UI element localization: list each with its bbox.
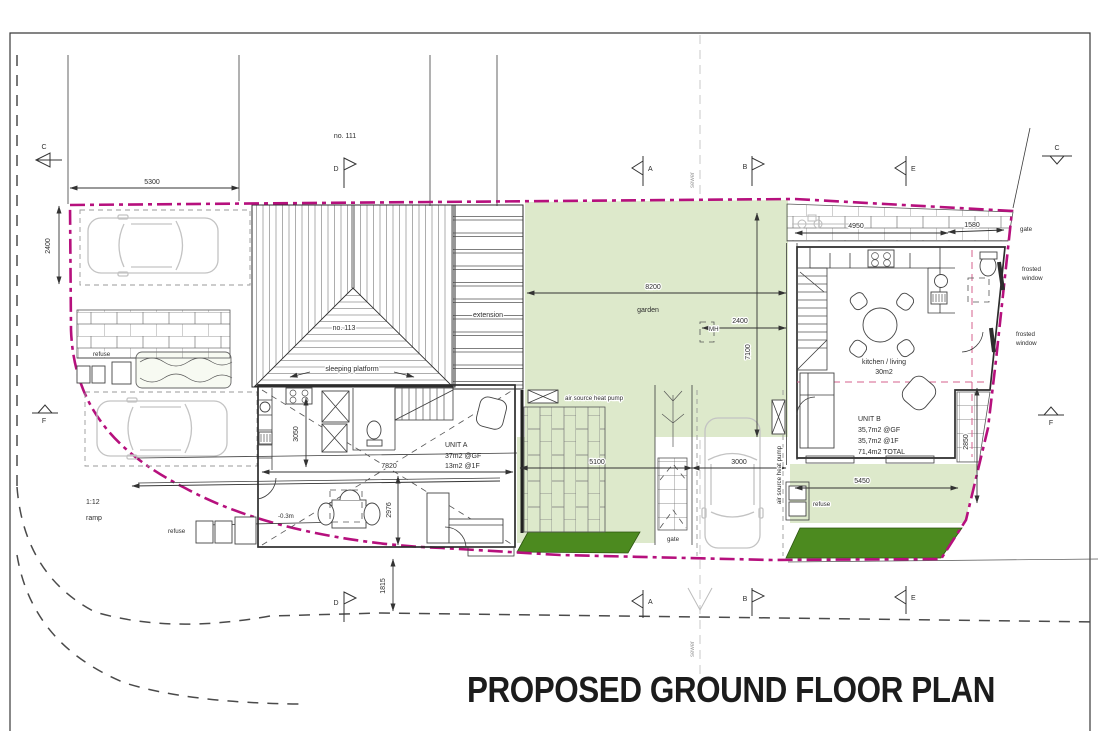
label-manhole: MH bbox=[709, 326, 719, 333]
street-kerb-outer-dashed bbox=[17, 555, 300, 704]
parking-bay-1 bbox=[80, 210, 250, 285]
drawing-title: PROPOSED GROUND FLOOR PLAN bbox=[467, 669, 995, 710]
marker-c-top-right: C bbox=[1042, 145, 1072, 164]
label-heat-pump-a: air source heat pump bbox=[565, 395, 624, 402]
dim-4950: 4950 bbox=[848, 223, 864, 230]
unit-b-name: UNIT B bbox=[858, 416, 881, 423]
label-gate-middle: gate bbox=[667, 536, 680, 543]
label-extension: extension bbox=[473, 312, 503, 319]
label-refuse-unit-b: refuse bbox=[813, 501, 831, 508]
label-refuse-unit-a: refuse bbox=[168, 528, 186, 535]
parking-bay-2 bbox=[85, 392, 257, 466]
sink-unit-b bbox=[935, 275, 948, 288]
marker-d-top: D bbox=[333, 158, 356, 188]
unit-b-total: 71,4m2 TOTAL bbox=[858, 449, 905, 456]
marker-f-right: F bbox=[1038, 407, 1064, 427]
patio-paving bbox=[524, 407, 605, 532]
unit-a bbox=[258, 385, 515, 556]
toilet-unit-a bbox=[367, 421, 381, 439]
lane-edge-line bbox=[1013, 128, 1030, 208]
sofa-unit-b bbox=[800, 373, 834, 448]
label-no-113: no. 113 bbox=[333, 325, 356, 332]
dining-unit-b bbox=[848, 291, 916, 359]
marker-letter: D bbox=[333, 166, 338, 173]
label-floor-level: -0.3m bbox=[278, 513, 294, 520]
frosted-window-2 bbox=[991, 328, 994, 352]
marker-d-bottom: D bbox=[333, 592, 356, 622]
unit-b-gf: 35,7m2 @GF bbox=[858, 427, 900, 434]
unit-a-name: UNIT A bbox=[445, 442, 468, 449]
label-sleeping-platform: sleeping platform bbox=[325, 366, 378, 373]
marker-letter: E bbox=[911, 595, 916, 602]
marker-b-top: B bbox=[743, 156, 764, 186]
dim-1580: 1580 bbox=[964, 222, 980, 229]
armchair-unit-a bbox=[475, 395, 508, 431]
unit-a-1f: 13m2 @1F bbox=[445, 463, 480, 470]
dim-2400-garden: 2400 bbox=[732, 318, 748, 325]
marker-a-top: A bbox=[632, 156, 653, 186]
dim-8200: 8200 bbox=[645, 284, 661, 291]
dim-7820: 7820 bbox=[381, 463, 397, 470]
label-ramp-gradient: 1:12 bbox=[86, 499, 100, 506]
refuse-unit-a bbox=[196, 517, 256, 544]
hob-unit-a bbox=[286, 388, 312, 404]
label-frosted-1b: window bbox=[1021, 275, 1043, 282]
label-no-111: no. 111 bbox=[334, 133, 356, 140]
dim-5100: 5100 bbox=[589, 459, 605, 466]
sofa-unit-a bbox=[427, 493, 503, 543]
extension-roof bbox=[453, 205, 523, 389]
car-2 bbox=[97, 398, 227, 459]
label-frosted-2b: window bbox=[1015, 340, 1037, 347]
floor-plan-canvas: C C D A B E F F D A B E no. 111 no. 113 … bbox=[0, 0, 1100, 731]
label-frosted-2a: frosted bbox=[1016, 331, 1035, 338]
dim-2400-left: 2400 bbox=[45, 238, 52, 254]
label-heat-pump-b: air source heat pump bbox=[776, 445, 783, 504]
hedge-right bbox=[786, 528, 962, 558]
refuse-front bbox=[77, 358, 136, 384]
marker-b-bottom: B bbox=[743, 588, 764, 616]
marker-letter: F bbox=[1049, 420, 1053, 427]
hedge-middle bbox=[517, 532, 640, 553]
marker-c-top-left: C bbox=[36, 144, 62, 167]
marker-f-left: F bbox=[32, 405, 58, 425]
label-kitchen-living: kitchen / living bbox=[862, 359, 906, 366]
dim-2976: 2976 bbox=[386, 502, 393, 518]
marker-letter: C bbox=[41, 144, 46, 151]
car-1 bbox=[88, 215, 218, 276]
marker-letter: A bbox=[648, 599, 653, 606]
marker-letter: D bbox=[333, 600, 338, 607]
dim-3000: 3000 bbox=[731, 459, 747, 466]
dim-1815: 1815 bbox=[380, 578, 387, 594]
marker-letter: B bbox=[743, 596, 748, 603]
label-kitchen-area: 30m2 bbox=[875, 369, 893, 376]
marker-a-bottom: A bbox=[632, 590, 653, 618]
label-gate-rear: gate bbox=[1020, 226, 1033, 233]
car-3 bbox=[702, 418, 763, 548]
stairs-unit-b bbox=[797, 268, 827, 370]
footway-line bbox=[788, 559, 1098, 562]
garden-unit-b bbox=[790, 464, 978, 523]
dim-2850: 2850 bbox=[963, 434, 970, 450]
path-paving bbox=[658, 458, 687, 530]
dim-5300: 5300 bbox=[144, 179, 160, 186]
armchair-unit-b bbox=[899, 373, 940, 414]
floor-plan-svg: C C D A B E F F D A B E no. 111 no. 113 … bbox=[0, 0, 1100, 731]
neighbour-roof bbox=[252, 205, 523, 389]
unit-a-gf: 37m2 @GF bbox=[445, 453, 481, 460]
marker-e-top: E bbox=[895, 156, 916, 186]
label-sewer-bottom: sewer bbox=[690, 641, 696, 657]
marker-e-bottom: E bbox=[895, 586, 916, 614]
unit-b-1f: 35,7m2 @1F bbox=[858, 438, 899, 445]
marker-letter: E bbox=[911, 166, 916, 173]
label-garden: garden bbox=[637, 307, 659, 314]
label-ramp: ramp bbox=[86, 515, 102, 522]
marker-letter: B bbox=[743, 164, 748, 171]
stairs-unit-a bbox=[395, 388, 453, 420]
paving-unit-b-side bbox=[957, 392, 990, 462]
label-sewer-top: sewer bbox=[690, 172, 696, 188]
marker-letter: C bbox=[1054, 145, 1059, 152]
dining-unit-a bbox=[318, 490, 380, 528]
marker-letter: A bbox=[648, 166, 653, 173]
marker-letter: F bbox=[42, 418, 46, 425]
dim-7100: 7100 bbox=[745, 344, 752, 360]
label-refuse-front: refuse bbox=[93, 351, 111, 358]
dim-3050: 3050 bbox=[293, 426, 300, 442]
label-frosted-1a: frosted bbox=[1022, 266, 1041, 273]
dim-5450: 5450 bbox=[854, 478, 870, 485]
